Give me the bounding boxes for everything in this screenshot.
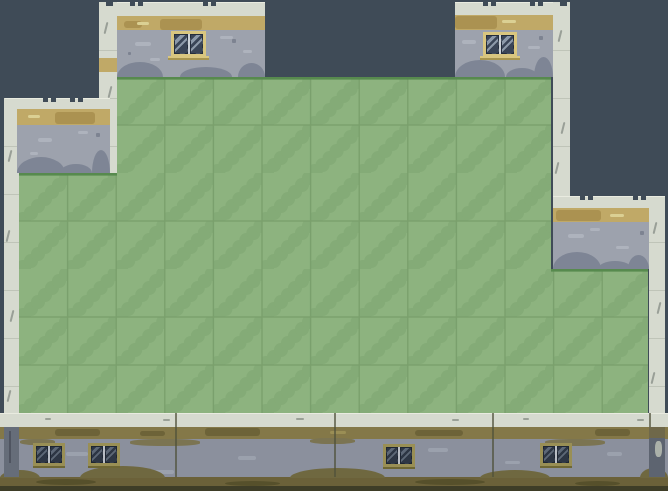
grass-floor-region bbox=[117, 77, 551, 173]
grass-floor-region bbox=[19, 173, 551, 269]
wall-top-notch bbox=[70, 98, 75, 102]
ground-base bbox=[0, 486, 668, 491]
wall-top-notch bbox=[203, 2, 208, 6]
concrete-fleck bbox=[128, 52, 131, 55]
wall-top-notch bbox=[530, 2, 535, 6]
band-dash bbox=[523, 418, 529, 420]
left-wall-top-band bbox=[5, 98, 110, 109]
window-pane bbox=[557, 446, 569, 463]
concrete-patch bbox=[38, 138, 52, 142]
column-seam bbox=[649, 290, 665, 291]
stripe-highlight bbox=[330, 431, 346, 434]
column-seam bbox=[649, 386, 665, 387]
right-wall-top-band bbox=[553, 196, 665, 208]
column-shadow bbox=[649, 427, 665, 438]
stripe-shade bbox=[595, 429, 630, 436]
wall-seam bbox=[334, 413, 336, 477]
stripe-shade bbox=[55, 429, 100, 436]
stripe-shade bbox=[160, 19, 202, 30]
wall-seam bbox=[492, 413, 494, 477]
olive-stain bbox=[130, 439, 200, 446]
column-notch bbox=[106, 2, 113, 6]
concrete-patch bbox=[568, 234, 584, 238]
window-pane bbox=[543, 446, 555, 463]
column-seam bbox=[4, 194, 19, 195]
ground-strip bbox=[0, 477, 668, 486]
column-seam bbox=[4, 290, 19, 291]
wall-top-notch bbox=[538, 2, 543, 6]
ground-blob bbox=[36, 479, 96, 485]
concrete-smudge bbox=[238, 456, 256, 460]
wall-top-notch bbox=[211, 2, 216, 6]
wall-top-notch bbox=[641, 196, 646, 200]
concrete-smudge bbox=[428, 448, 448, 452]
window-divider bbox=[398, 447, 400, 464]
window-sill bbox=[480, 56, 520, 60]
wall-top-notch bbox=[43, 98, 48, 102]
concrete-patch bbox=[528, 46, 540, 49]
column-seam bbox=[553, 50, 570, 51]
column-seam bbox=[4, 242, 19, 243]
column-seam bbox=[649, 338, 665, 339]
wall-top-notch bbox=[483, 2, 488, 6]
concrete-patch bbox=[616, 246, 629, 249]
olive-stain bbox=[310, 438, 355, 444]
column-seam bbox=[99, 50, 117, 51]
column-shadow bbox=[4, 427, 19, 477]
wall-top-notch bbox=[588, 196, 593, 200]
ground-blob bbox=[575, 481, 620, 486]
window-pane bbox=[190, 34, 204, 54]
column-notch bbox=[560, 2, 567, 6]
column-seam bbox=[4, 338, 19, 339]
game-viewport bbox=[0, 0, 668, 491]
wall-seam bbox=[175, 413, 177, 477]
window-sill bbox=[168, 56, 209, 60]
concrete-patch bbox=[30, 152, 38, 155]
band-dash bbox=[452, 419, 459, 421]
window-divider bbox=[188, 34, 190, 54]
window-pane bbox=[174, 34, 188, 54]
wall-top-notch bbox=[633, 196, 638, 200]
concrete-patch bbox=[462, 40, 476, 44]
wall-top-notch bbox=[580, 196, 585, 200]
concrete-smudge bbox=[66, 452, 88, 456]
window-divider bbox=[499, 35, 501, 54]
wall-top-notch bbox=[78, 98, 83, 102]
grass-floor-region bbox=[19, 269, 648, 414]
game-scene bbox=[0, 0, 668, 491]
column-seam bbox=[553, 98, 570, 99]
window-divider bbox=[103, 446, 105, 463]
concrete-fleck bbox=[539, 36, 543, 40]
concrete-smudge bbox=[505, 461, 520, 464]
window-pane bbox=[386, 447, 398, 464]
concrete-patch bbox=[243, 50, 252, 53]
stripe-highlight bbox=[137, 22, 149, 25]
stripe-shade bbox=[205, 428, 260, 436]
column-seam bbox=[649, 242, 665, 243]
band-dash bbox=[45, 418, 51, 420]
window-pane bbox=[105, 446, 117, 463]
concrete-patch bbox=[78, 131, 88, 134]
window-pane bbox=[36, 446, 48, 463]
stripe-shade bbox=[140, 431, 165, 436]
stripe-shade bbox=[455, 16, 497, 29]
ground-blob bbox=[415, 479, 485, 485]
concrete-patch bbox=[150, 58, 160, 61]
concrete-fleck bbox=[640, 231, 644, 235]
stripe-shade bbox=[55, 112, 95, 124]
stripe-shade bbox=[415, 430, 463, 436]
stripe-highlight bbox=[502, 20, 516, 23]
column-seam bbox=[553, 146, 570, 147]
concrete-patch bbox=[590, 228, 600, 231]
concrete-fleck bbox=[96, 133, 100, 137]
concrete-smudge bbox=[607, 452, 622, 456]
wall-top-notch bbox=[130, 2, 135, 6]
concrete-patch bbox=[135, 42, 151, 46]
stripe-highlight bbox=[28, 115, 40, 118]
band-dash bbox=[637, 419, 644, 421]
stripe-shade bbox=[556, 210, 601, 221]
window-pane bbox=[486, 35, 499, 54]
band-dash bbox=[296, 418, 304, 420]
column-shadow-blob bbox=[655, 441, 662, 457]
wall-top-notch bbox=[51, 98, 56, 102]
band-dash bbox=[163, 419, 170, 421]
stripe-highlight bbox=[610, 214, 624, 217]
concrete-patch bbox=[220, 36, 233, 39]
ground-blob bbox=[225, 481, 280, 486]
wall-top-notch bbox=[138, 2, 143, 6]
window-pane bbox=[50, 446, 62, 463]
concrete-fleck bbox=[232, 39, 236, 43]
column-seam bbox=[4, 386, 19, 387]
window-divider bbox=[48, 446, 50, 463]
window-pane bbox=[400, 447, 412, 464]
window-divider bbox=[555, 446, 557, 463]
column-shadow-crack bbox=[9, 431, 11, 463]
wall-top-notch bbox=[491, 2, 496, 6]
window-pane bbox=[501, 35, 514, 54]
column-stripe-patch bbox=[99, 58, 117, 72]
window-pane bbox=[91, 446, 103, 463]
